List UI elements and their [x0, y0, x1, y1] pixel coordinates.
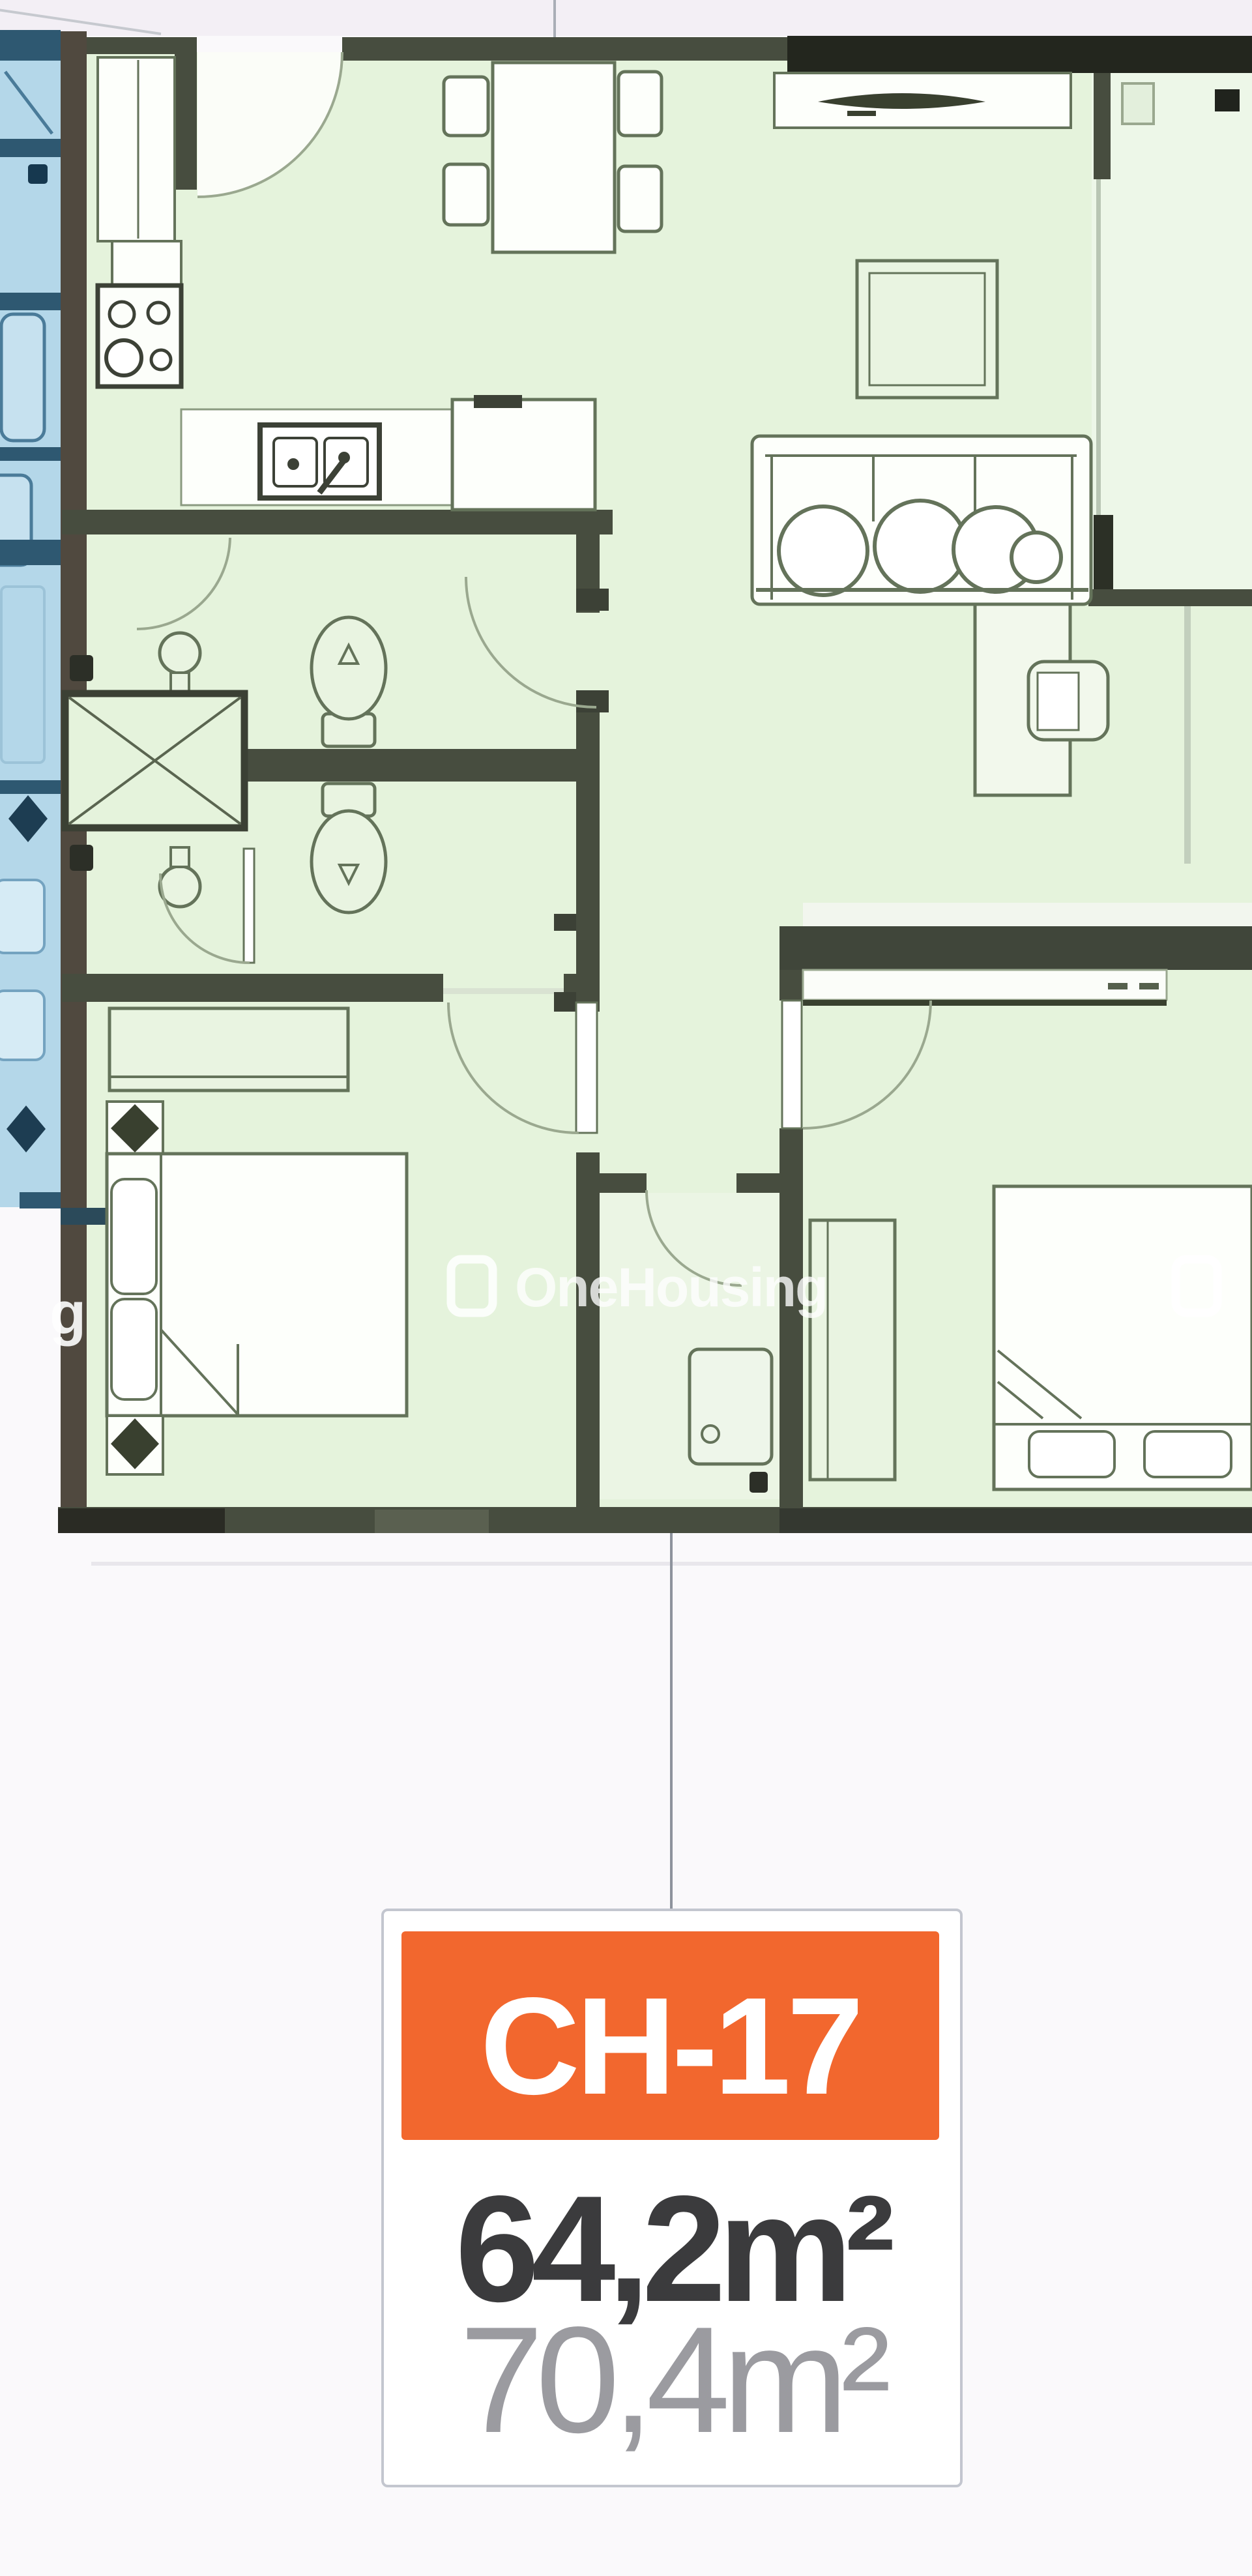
svg-text:70,4m²: 70,4m²	[459, 2296, 888, 2465]
svg-text:OneHousing: OneHousing	[515, 1257, 827, 1318]
svg-text:CH-17: CH-17	[480, 1969, 860, 2123]
svg-text:g: g	[50, 1280, 86, 1347]
